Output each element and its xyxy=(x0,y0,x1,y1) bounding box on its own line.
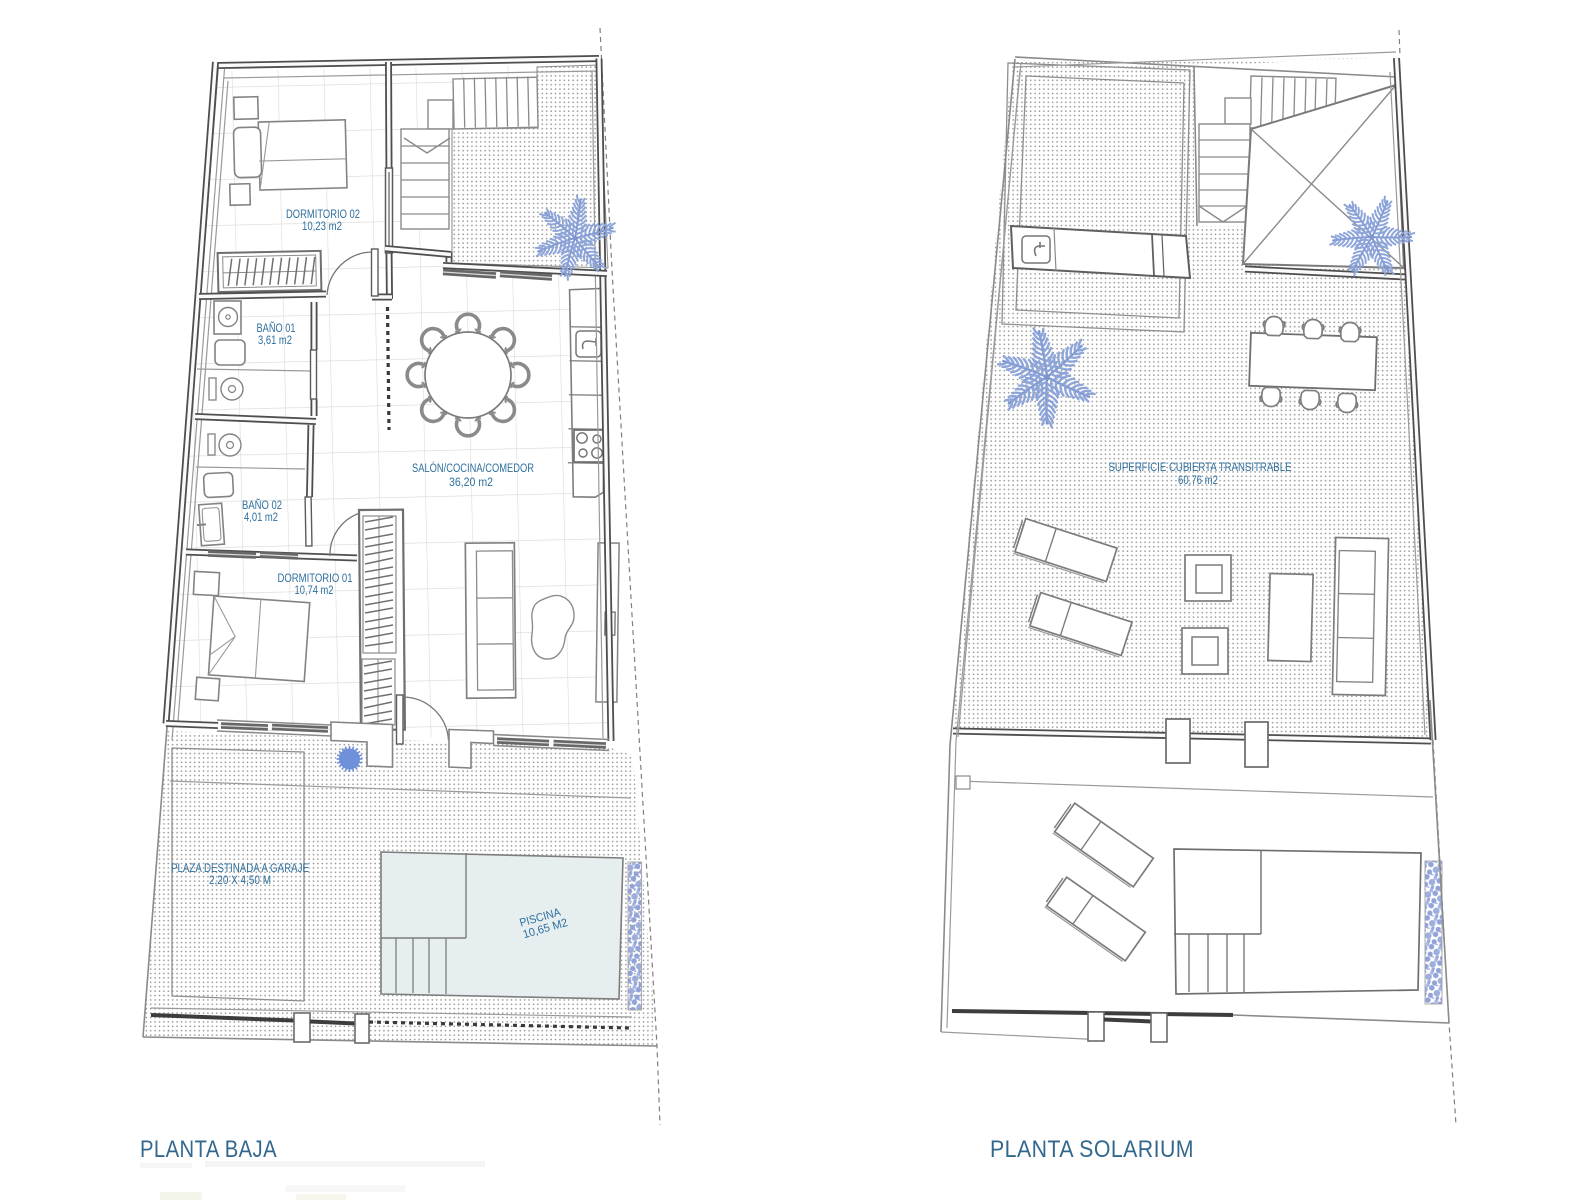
svg-text:3,61 m2: 3,61 m2 xyxy=(258,335,292,347)
svg-text:SUPERFICIE CUBIERTA TRANSITRAB: SUPERFICIE CUBIERTA TRANSITRABLE xyxy=(1109,462,1292,474)
svg-text:10,74 m2: 10,74 m2 xyxy=(295,585,334,597)
svg-text:BAÑO 01: BAÑO 01 xyxy=(257,322,296,335)
svg-text:2,20 X 4,50 M: 2,20 X 4,50 M xyxy=(209,875,271,887)
svg-text:10,23 m2: 10,23 m2 xyxy=(302,221,342,233)
svg-text:60,76 m2: 60,76 m2 xyxy=(1178,475,1218,487)
svg-text:SALÓN/COCINA/COMEDOR: SALÓN/COCINA/COMEDOR xyxy=(412,462,534,475)
svg-text:DORMITORIO 01: DORMITORIO 01 xyxy=(278,573,353,585)
svg-text:PLANTA BAJA: PLANTA BAJA xyxy=(140,1136,277,1163)
svg-text:36,20 m2: 36,20 m2 xyxy=(449,477,493,489)
svg-text:PLANTA SOLARIUM: PLANTA SOLARIUM xyxy=(990,1136,1194,1163)
svg-text:PLAZA DESTINADA A GARAJE: PLAZA DESTINADA A GARAJE xyxy=(171,863,309,875)
svg-text:DORMITORIO 02: DORMITORIO 02 xyxy=(286,209,360,221)
svg-text:BAÑO 02: BAÑO 02 xyxy=(242,499,282,512)
svg-text:4,01 m2: 4,01 m2 xyxy=(244,512,278,524)
